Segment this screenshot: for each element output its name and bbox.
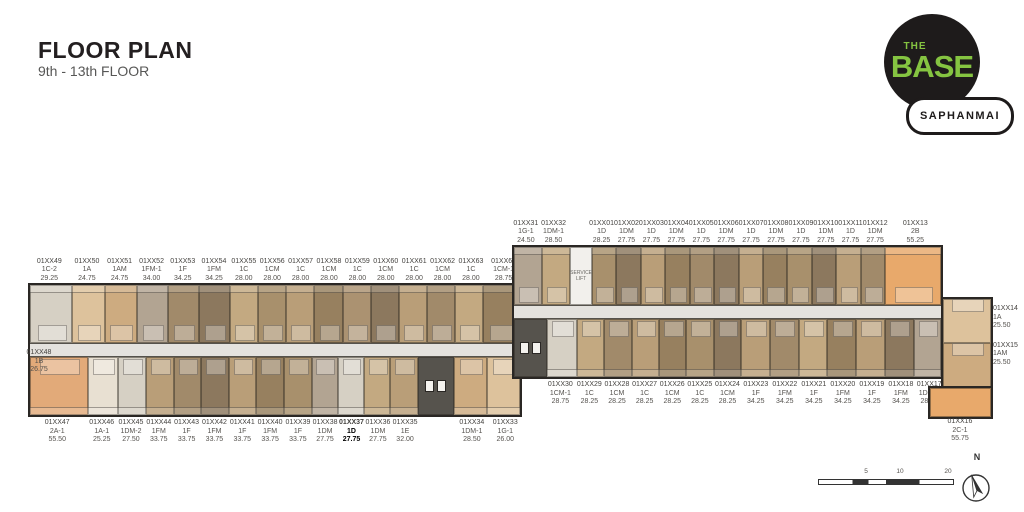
unit-label-01XX51: 01XX511AM24.75 xyxy=(103,258,136,284)
unit-label-01XX49: 01XX491C-229.25 xyxy=(28,258,71,284)
unit-label-01XX39: 01XX391F33.75 xyxy=(284,419,312,445)
floor-range-subtitle: 9th - 13th FLOOR xyxy=(38,62,193,80)
unit-cell-01XX46 xyxy=(88,357,118,415)
unit-label-01XX47: 01XX472A-155.50 xyxy=(28,419,86,445)
unit-cell-01XX37 xyxy=(338,357,364,415)
unit-label-01XX34: 01XX341DM-128.50 xyxy=(455,419,488,445)
unit-cell-01XX53 xyxy=(168,285,199,343)
unit-cell-01XX32 xyxy=(542,247,570,305)
unit-label-01XX06: 01XX061DM27.75 xyxy=(714,220,739,246)
unit-label-01XX57: 01XX571C28.00 xyxy=(286,258,314,284)
project-location-badge: SAPHANMAI xyxy=(906,97,1014,135)
unit-label-01XX22: 01XX221FM34.25 xyxy=(770,381,799,407)
unit-cell-01XX59 xyxy=(343,285,371,343)
left-wing-top-cells xyxy=(30,285,520,343)
unit-cell-01XX02 xyxy=(616,247,640,305)
unit-cell-01XX22 xyxy=(770,319,799,377)
right-wing-building: SERVICE LIFT xyxy=(512,245,943,379)
unit-label-01XX46: 01XX461A-125.25 xyxy=(86,419,117,445)
right-wing-side-cells xyxy=(941,297,993,389)
unit-label-01XX48: 01XX48 1B 26.75 xyxy=(16,349,62,375)
unit-cell-01XX16 xyxy=(928,386,993,419)
unit-label-01XX13: 01XX132B55.25 xyxy=(888,220,943,246)
unit-cell-01XX35 xyxy=(390,357,418,415)
unit-cell-01XX04 xyxy=(665,247,689,305)
unit-cell-01XX18 xyxy=(885,319,914,377)
unit-cell-01XX45 xyxy=(118,357,146,415)
unit-cell-01XX56 xyxy=(258,285,286,343)
unit-cell-01XX09 xyxy=(787,247,811,305)
left-wing-bottom-cells xyxy=(30,357,520,415)
unit-cell-01XX27 xyxy=(632,319,659,377)
unit-cell-01XX21 xyxy=(799,319,828,377)
floor-plan-page: FLOOR PLAN 9th - 13th FLOOR THE BASE SAP… xyxy=(0,0,1024,512)
unit-label-01XX08: 01XX081DM27.75 xyxy=(764,220,789,246)
unit-label-01XX14: 01XX141A25.50 xyxy=(993,305,1023,331)
unit-label-01XX16: 01XX16 2C-1 55.75 xyxy=(928,418,992,444)
page-header: FLOOR PLAN 9th - 13th FLOOR xyxy=(38,38,193,80)
left-wing-top-labels: 01XX491C-229.2501XX501A24.7501XX511AM24.… xyxy=(28,250,522,283)
unit-cell-01XX10 xyxy=(812,247,836,305)
unit-label-01XX44: 01XX441FM33.75 xyxy=(145,419,173,445)
unit-cell-01XX55 xyxy=(230,285,258,343)
unit-label-01XX56: 01XX561CM28.00 xyxy=(258,258,286,284)
unit-cell-01XX03 xyxy=(641,247,665,305)
right-wing-bottom-labels: 01XX301CM-128.7501XX291C28.2501XX281CM28… xyxy=(512,379,943,415)
left-wing-floorplan: 01XX491C-229.2501XX501A24.7501XX511AM24.… xyxy=(28,250,522,453)
left-wing-corridor xyxy=(30,343,520,357)
page-title: FLOOR PLAN xyxy=(38,38,193,62)
unit-cell-01XX11 xyxy=(836,247,860,305)
unit-cell-01XX05 xyxy=(690,247,714,305)
unit-label-01XX05: 01XX051D27.75 xyxy=(689,220,714,246)
unit-label-01XX03: 01XX031D27.75 xyxy=(639,220,664,246)
unit-label-01XX10: 01XX101DM27.75 xyxy=(813,220,838,246)
unit-label-01XX55: 01XX551C28.00 xyxy=(230,258,258,284)
unit-cell-01XX49 xyxy=(30,285,72,343)
unit-cell-01XX14 xyxy=(943,299,991,343)
unit-label-01XX52: 01XX521FM-134.00 xyxy=(136,258,167,284)
unit-label-01XX60: 01XX601CM28.00 xyxy=(372,258,400,284)
core-block xyxy=(514,319,547,377)
unit-label-01XX21: 01XX211F34.25 xyxy=(799,381,828,407)
unit-label-01XX59: 01XX591C28.00 xyxy=(343,258,371,284)
unit-cell-01XX29 xyxy=(577,319,604,377)
unit-label-01XX63: 01XX631C28.00 xyxy=(457,258,485,284)
unit-cell-01XX15 xyxy=(943,343,991,387)
unit-label-01XX19: 01XX191F34.25 xyxy=(857,381,886,407)
scale-bar-ruler xyxy=(818,479,954,485)
unit-cell-01XX51 xyxy=(105,285,137,343)
core-block xyxy=(418,357,454,415)
unit-cell-01XX36 xyxy=(364,357,390,415)
scale-bar-ticks: 5 10 20 xyxy=(818,468,954,477)
right-wing-top-labels: 01XX311G-124.5001XX321DM-128.5001XX011D2… xyxy=(512,212,943,245)
unit-cell-01XX23 xyxy=(741,319,770,377)
unit-cell-01XX17 xyxy=(914,319,941,377)
unit-label-01XX20: 01XX201FM34.25 xyxy=(828,381,857,407)
unit-cell-01XX41 xyxy=(229,357,257,415)
unit-label-01XX01: 01XX011D28.25 xyxy=(589,220,614,246)
unit-label-01XX35: 01XX351E32.00 xyxy=(391,419,419,445)
unit-cell-01XX60 xyxy=(371,285,399,343)
unit-label-01XX31: 01XX311G-124.50 xyxy=(512,220,540,246)
right-wing-corridor xyxy=(514,305,941,319)
unit-label-01XX11: 01XX111D27.75 xyxy=(838,220,862,246)
unit-cell-01XX01 xyxy=(592,247,616,305)
unit-label-01XX29: 01XX291C28.25 xyxy=(576,381,604,407)
unit-cell-01XX57 xyxy=(286,285,314,343)
unit-cell-01XX06 xyxy=(714,247,738,305)
unit-cell-01XX30 xyxy=(547,319,577,377)
unit-label-01XX42: 01XX421FM33.75 xyxy=(201,419,229,445)
unit-label-01XX27: 01XX271C28.25 xyxy=(631,381,659,407)
unit-label-01XX58: 01XX581CM28.00 xyxy=(315,258,343,284)
unit-label-01XX02: 01XX021DM27.75 xyxy=(614,220,639,246)
unit-cell-01XX08 xyxy=(763,247,787,305)
unit-label-01XX32: 01XX321DM-128.50 xyxy=(540,220,568,246)
unit-cell-01XX39 xyxy=(284,357,312,415)
unit-cell-01XX52 xyxy=(137,285,168,343)
left-wing-bottom-labels: 01XX472A-155.5001XX461A-125.2501XX451DM-… xyxy=(28,417,522,453)
unit-label-01XX45: 01XX451DM-227.50 xyxy=(117,419,145,445)
scale-bar: 5 10 20 xyxy=(818,468,954,488)
compass-north-icon: N xyxy=(956,450,996,512)
unit-label-01XX38: 01XX381DM27.75 xyxy=(312,419,338,445)
unit-label-01XX26: 01XX261CM28.25 xyxy=(658,381,686,407)
unit-cell-01XX28 xyxy=(604,319,631,377)
unit-label-01XX18: 01XX181FM34.25 xyxy=(886,381,915,407)
location-label: SAPHANMAI xyxy=(920,110,1000,122)
unit-cell-01XX12 xyxy=(861,247,885,305)
unit-cell-01XX44 xyxy=(146,357,174,415)
unit-cell-01XX58 xyxy=(314,285,342,343)
unit-label-01XX53: 01XX531F34.25 xyxy=(167,258,198,284)
unit-cell-01XX07 xyxy=(739,247,763,305)
unit-cell-01XX63 xyxy=(455,285,483,343)
unit-cell-01XX40 xyxy=(256,357,284,415)
right-wing-floorplan: 01XX311G-124.5001XX321DM-128.5001XX011D2… xyxy=(512,212,943,415)
unit-label-01XX09: 01XX091D27.75 xyxy=(788,220,813,246)
unit-cell-01XX62 xyxy=(427,285,455,343)
unit-cell-01XX50 xyxy=(72,285,104,343)
unit-label-01XX12: 01XX121DM27.75 xyxy=(863,220,888,246)
unit-label-01XX28: 01XX281CM28.25 xyxy=(603,381,631,407)
unit-label-01XX37: 01XX371D27.75 xyxy=(338,419,364,445)
unit-label-01XX04: 01XX041DM27.75 xyxy=(664,220,689,246)
left-wing-building xyxy=(28,283,522,417)
unit-label-01XX33: 01XX331G-126.00 xyxy=(489,419,522,445)
unit-label-01XX41: 01XX411F33.75 xyxy=(228,419,256,445)
service-lift: SERVICE LIFT xyxy=(570,247,592,305)
unit-label-01XX36: 01XX361DM27.75 xyxy=(365,419,391,445)
logo-base-text: BASE xyxy=(891,52,973,82)
unit-cell-01XX38 xyxy=(312,357,338,415)
unit-label-01XX62: 01XX621CM28.00 xyxy=(428,258,456,284)
unit-label-01XX25: 01XX251C28.25 xyxy=(686,381,714,407)
unit-label-01XX54: 01XX541FM34.25 xyxy=(198,258,229,284)
the-base-logo: THE BASE xyxy=(884,14,980,110)
unit-cell-01XX19 xyxy=(856,319,885,377)
unit-cell-01XX54 xyxy=(199,285,230,343)
unit-cell-01XX34 xyxy=(454,357,487,415)
right-wing-top-cells: SERVICE LIFT xyxy=(514,247,941,305)
unit-label-01XX40: 01XX401FM33.75 xyxy=(256,419,284,445)
right-wing-side-labels: 01XX141A25.5001XX151AM25.50 xyxy=(993,305,1023,367)
unit-label-01XX61: 01XX611C28.00 xyxy=(400,258,428,284)
unit-label-01XX15: 01XX151AM25.50 xyxy=(993,342,1023,368)
unit-label-01XX07: 01XX071D27.75 xyxy=(739,220,764,246)
unit-cell-01XX26 xyxy=(659,319,686,377)
unit-cell-01XX25 xyxy=(686,319,713,377)
unit-cell-01XX24 xyxy=(714,319,741,377)
svg-text:N: N xyxy=(974,452,981,462)
unit-cell-01XX43 xyxy=(174,357,202,415)
unit-label-01XX30: 01XX301CM-128.75 xyxy=(545,381,575,407)
unit-cell-01XX13 xyxy=(885,247,941,305)
unit-label-01XX43: 01XX431F33.75 xyxy=(173,419,201,445)
unit-cell-01XX20 xyxy=(827,319,856,377)
right-wing-bottom-cells xyxy=(514,319,941,377)
unit-label-01XX23: 01XX231F34.25 xyxy=(741,381,770,407)
unit-label-01XX24: 01XX241CM28.25 xyxy=(714,381,742,407)
unit-cell-01XX61 xyxy=(399,285,427,343)
unit-cell-01XX31 xyxy=(514,247,542,305)
unit-label-01XX50: 01XX501A24.75 xyxy=(71,258,104,284)
unit-cell-01XX42 xyxy=(201,357,229,415)
